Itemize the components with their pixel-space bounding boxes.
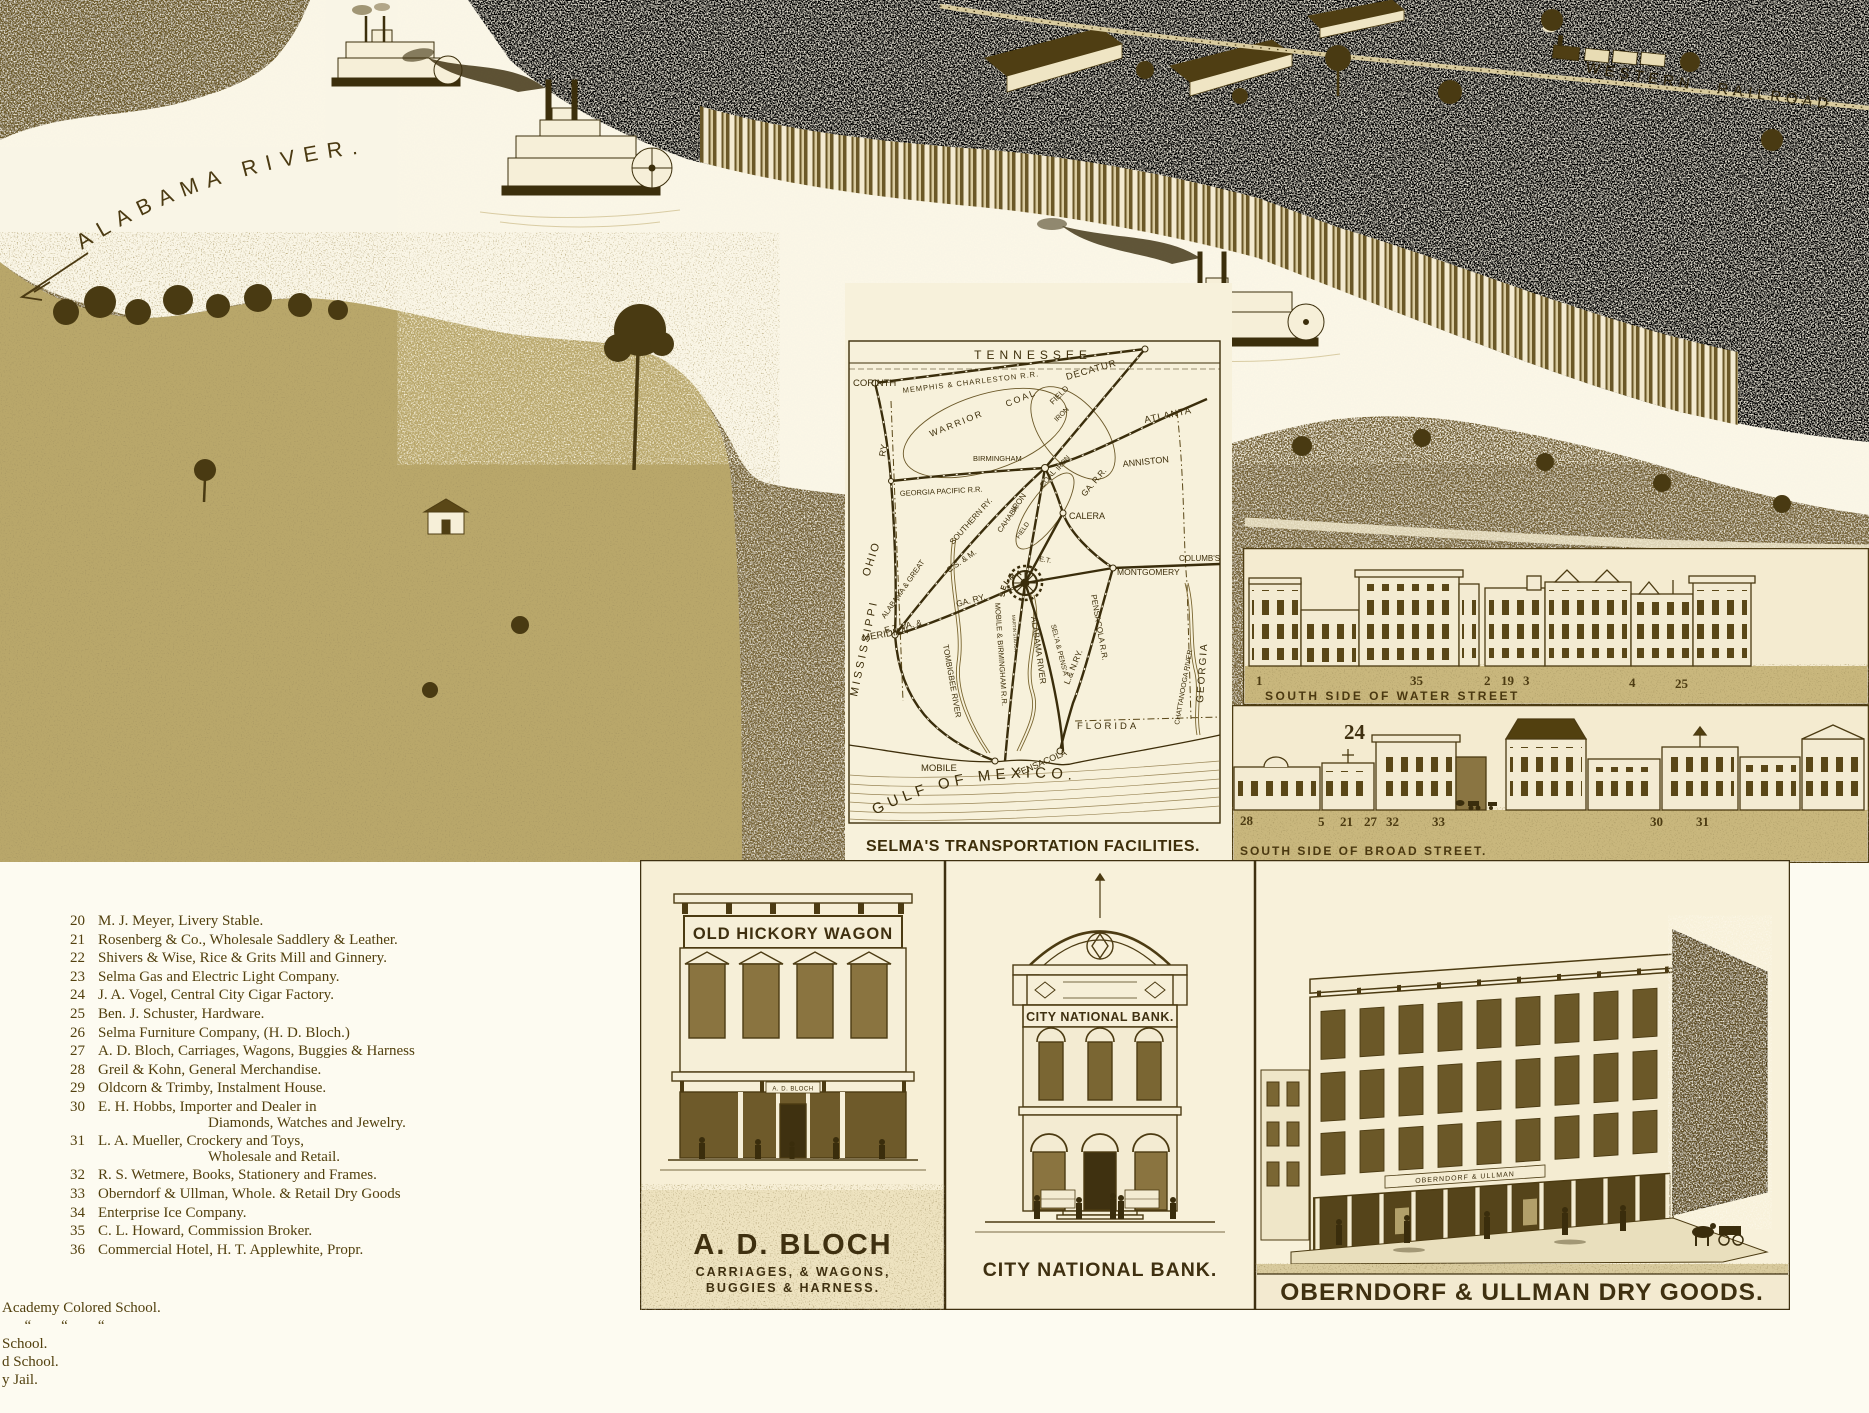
legend-item-number: 20 [55,914,85,930]
svg-text:1: 1 [1256,673,1263,688]
legend-item: 31L. A. Mueller, Crockery and Toys, Whol… [55,1134,475,1165]
legend-item: 34Enterprise Ice Company. [55,1206,475,1222]
building-facade [1355,570,1463,666]
door-sign-text: A. D. BLOCH [772,1087,813,1093]
legend-item-number: 26 [55,1026,85,1042]
legend-item-text: R. S. Wetmere, Books, Stationery and Fra… [98,1167,377,1183]
map-label-mobile-city: MOBILE [921,763,957,774]
bloch-caption-line3: BUGGIES & HARNESS. [706,1281,880,1295]
building-facade [1301,610,1359,666]
oberndorf-caption: OBERNDORF & ULLMAN DRY GOODS. [1280,1279,1764,1306]
legend-item: 20M. J. Meyer, Livery Stable. [55,914,475,930]
building-facade [1588,759,1660,810]
svg-text:33: 33 [1432,814,1446,829]
legend-item: 32R. S. Wetmere, Books, Stationery and F… [55,1168,475,1184]
corner-note-line: School. [2,1336,161,1352]
legend-item: 28Greil & Kohn, General Merchandise. [55,1063,475,1079]
legend-item-text: A. D. Bloch, Carriages, Wagons, Buggies … [98,1043,415,1059]
svg-text:30: 30 [1650,814,1663,829]
legend-item-text: Oberndorf & Ullman, Whole. & Retail Dry … [98,1186,401,1202]
vignette-bank: CITY NATIONAL BANK. CITY NATIONAL BANK. [945,860,1255,1310]
corner-note-line: “ “ “ [2,1318,161,1334]
legend-item: 29Oldcorn & Trimby, Instalment House. [55,1081,475,1097]
legend-item-number: 29 [55,1081,85,1097]
legend-item-text: Selma Furniture Company, (H. D. Bloch.) [98,1025,350,1041]
window-rows [1321,988,1657,1175]
legend-item-text: Selma Gas and Electric Light Company. [98,969,339,985]
legend-item: 30E. H. Hobbs, Importer and Dealer in Di… [55,1100,475,1131]
neighbor-building [1261,1070,1309,1240]
legend-item-number: 34 [55,1206,85,1222]
legend-item: 33Oberndorf & Ullman, Whole. & Retail Dr… [55,1187,475,1203]
building-facade [1485,576,1545,666]
building-facade [1506,719,1586,810]
legend-item-continuation: Wholesale and Retail. [208,1150,475,1166]
selma-birdseye-map: WESTERN RAILROAD [0,0,1869,1413]
map-caption: SELMA'S TRANSPORTATION FACILITIES. [866,838,1200,855]
legend-item-number: 23 [55,970,85,986]
legend-item-number: 25 [55,1007,85,1023]
building-facade [1689,576,1755,666]
legend-item-text: Oldcorn & Trimby, Instalment House. [98,1080,326,1096]
legend-item: 26Selma Furniture Company, (H. D. Bloch.… [55,1026,475,1042]
svg-text:31: 31 [1696,814,1709,829]
svg-text:35: 35 [1410,673,1424,688]
svg-text:27: 27 [1364,814,1378,829]
map-label-florida: FLORIDA [1077,721,1139,732]
legend-item-text: E. H. Hobbs, Importer and Dealer in [98,1099,317,1115]
legend-item-number: 24 [55,988,85,1004]
building-facade [1545,570,1631,666]
legend-item-text: J. A. Vogel, Central City Cigar Factory. [98,987,334,1003]
corner-note-line: d School. [2,1354,161,1370]
legend-item-number: 31 [55,1134,85,1150]
svg-text:4: 4 [1629,675,1636,690]
corner-note-line: y Jail. [2,1372,161,1388]
legend-item: 25Ben. J. Schuster, Hardware. [55,1007,475,1023]
main-building-front: OBERNDORF & ULLMAN [1310,954,1673,1252]
legend-item-number: 30 [55,1100,85,1116]
legend-item-number: 33 [55,1187,85,1203]
legend-item: 24J. A. Vogel, Central City Cigar Factor… [55,988,475,1004]
svg-text:19: 19 [1501,673,1515,688]
transportation-map: TENNESSEE CORINTH MEMPHIS & CHARLESTON R… [845,283,1232,865]
legend-item-number: 27 [55,1044,85,1060]
bloch-caption-line2: CARRIAGES, & WAGONS, [696,1265,891,1279]
legend-item-number: 32 [55,1168,85,1184]
building-facade [1802,725,1864,810]
svg-text:25: 25 [1675,676,1689,691]
legend-item: 35C. L. Howard, Commission Broker. [55,1224,475,1240]
legend-item-number: 22 [55,951,85,967]
vignette-bloch: A. D. BLOCH OLD HICKORY WAGON A. D. BLOC… [640,860,945,1310]
corner-note-line: Academy Colored School. [2,1300,161,1316]
side-wall [1673,930,1767,1215]
bank-caption: CITY NATIONAL BANK. [983,1259,1218,1281]
legend-item-text: Ben. J. Schuster, Hardware. [98,1006,264,1022]
bank-facade-sign: CITY NATIONAL BANK. [1026,1010,1174,1024]
legend-item-continuation: Diamonds, Watches and Jewelry. [208,1116,475,1132]
svg-text:28: 28 [1240,813,1254,828]
legend-item: 22Shivers & Wise, Rice & Grits Mill and … [55,951,475,967]
map-label-birmingham: BIRMINGHAM [973,454,1022,463]
legend-item: 21Rosenberg & Co., Wholesale Saddlery & … [55,933,475,949]
bloch-caption-title: A. D. BLOCH [693,1229,892,1261]
vignette-oberndorf: OBERNDORF & ULLMAN [1255,860,1790,1310]
legend-item-text: C. L. Howard, Commission Broker. [98,1223,312,1239]
building-facade [1372,735,1460,810]
legend-item: 23Selma Gas and Electric Light Company. [55,970,475,986]
legend-item: 27A. D. Bloch, Carriages, Wagons, Buggie… [55,1044,475,1060]
bloch-sign-text: OLD HICKORY WAGON [693,925,893,943]
legend-item-number: 21 [55,933,85,949]
legend-item-text: Commercial Hotel, H. T. Applewhite, Prop… [98,1242,363,1258]
building-facade [1459,584,1479,666]
building-facade [1249,578,1301,666]
svg-text:3: 3 [1523,673,1530,688]
water-street-elevation: 1 35 2 19 3 4 25 SOUTH SIDE OF WATER STR… [1243,548,1869,705]
legend-item-text: M. J. Meyer, Livery Stable. [98,913,263,929]
map-label-corinth: CORINTH [853,378,896,389]
svg-text:21: 21 [1340,814,1353,829]
map-label-tennessee: TENNESSEE [974,348,1092,362]
legend-item-number: 28 [55,1063,85,1079]
legend-item-text: Shivers & Wise, Rice & Grits Mill and Gi… [98,950,387,966]
broad-street-elevation: 24 28 5 21 27 32 33 30 31 SOUTH SIDE OF … [1232,705,1869,863]
svg-text:5: 5 [1318,814,1325,829]
broad-street-caption: SOUTH SIDE OF BROAD STREET. [1240,844,1487,858]
legend-item-text: Greil & Kohn, General Merchandise. [98,1062,321,1078]
building-facade [1740,757,1800,810]
legend-item-text: Enterprise Ice Company. [98,1205,247,1221]
legend-item-text: L. A. Mueller, Crockery and Toys, [98,1133,304,1149]
legend-item-text: Rosenberg & Co., Wholesale Saddlery & Le… [98,932,398,948]
svg-text:2: 2 [1484,673,1491,688]
broad-street-big-number: 24 [1344,720,1366,744]
water-street-caption: SOUTH SIDE OF WATER STREET [1265,689,1520,703]
corner-notes: Academy Colored School. “ “ “ School. d … [2,1300,161,1390]
legend-item: 36Commercial Hotel, H. T. Applewhite, Pr… [55,1243,475,1259]
business-directory: 20M. J. Meyer, Livery Stable. 21Rosenber… [55,914,475,1261]
svg-text:32: 32 [1386,814,1399,829]
map-label-columbus: COLUMB'S [1179,554,1220,563]
map-label-calera: CALERA [1069,511,1105,521]
map-label-montgomery: MONTGOMERY [1117,567,1180,577]
legend-item-number: 35 [55,1224,85,1240]
legend-item-number: 36 [55,1243,85,1259]
